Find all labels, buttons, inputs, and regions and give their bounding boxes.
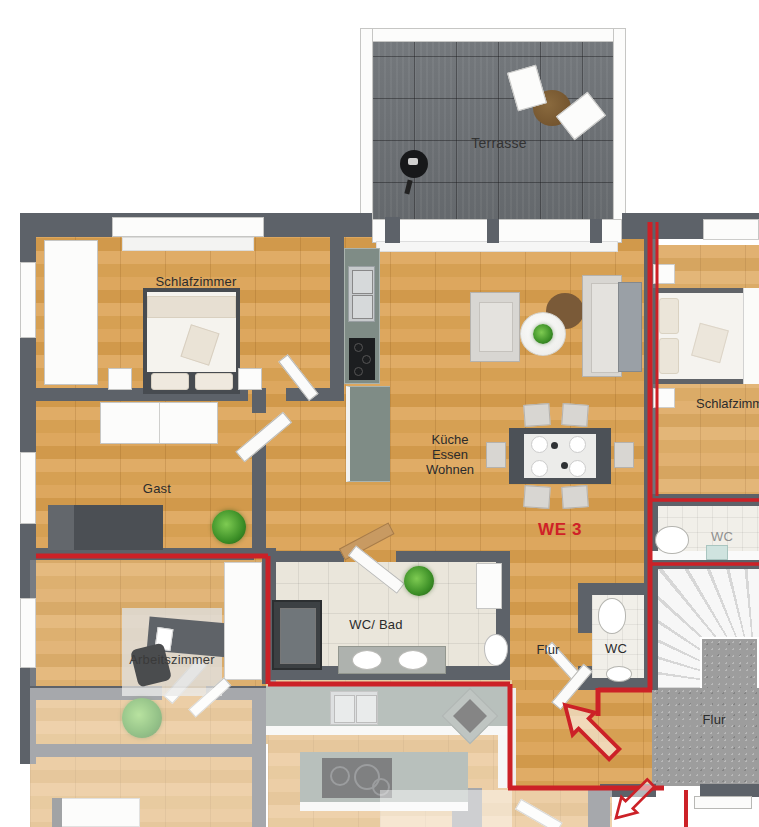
label-flur-stairwell: Flur xyxy=(702,712,725,727)
label-flur-we3: Flur xyxy=(536,642,559,657)
label-schlafzimmer-left: Schlafzimmer xyxy=(155,274,236,289)
label-wohnbereich-line2: Essen xyxy=(426,447,474,462)
floor-plan: Terrasse Schlafzimmer Gast Küche Essen W… xyxy=(0,0,759,827)
label-arbeitszimmer: Arbeitszimmer xyxy=(129,652,215,667)
label-gast: Gast xyxy=(143,481,171,496)
apartment-boundary-overlay xyxy=(0,0,759,827)
label-wc-bad: WC/ Bad xyxy=(349,617,402,632)
label-wohnbereich-line1: Küche xyxy=(426,432,474,447)
label-terrasse: Terrasse xyxy=(471,135,526,151)
label-wohnbereich: Küche Essen Wohnen xyxy=(426,432,474,477)
entrance-arrow-icon xyxy=(554,694,625,765)
label-schlafzimmer-right: Schlafzimmer xyxy=(696,396,759,411)
label-wohnbereich-line3: Wohnen xyxy=(426,462,474,477)
label-wc-right: WC xyxy=(711,529,733,544)
label-unit-we3: WE 3 xyxy=(538,520,582,540)
entrance-arrow-2-icon xyxy=(608,775,658,825)
label-wc-small: WC xyxy=(605,641,627,656)
